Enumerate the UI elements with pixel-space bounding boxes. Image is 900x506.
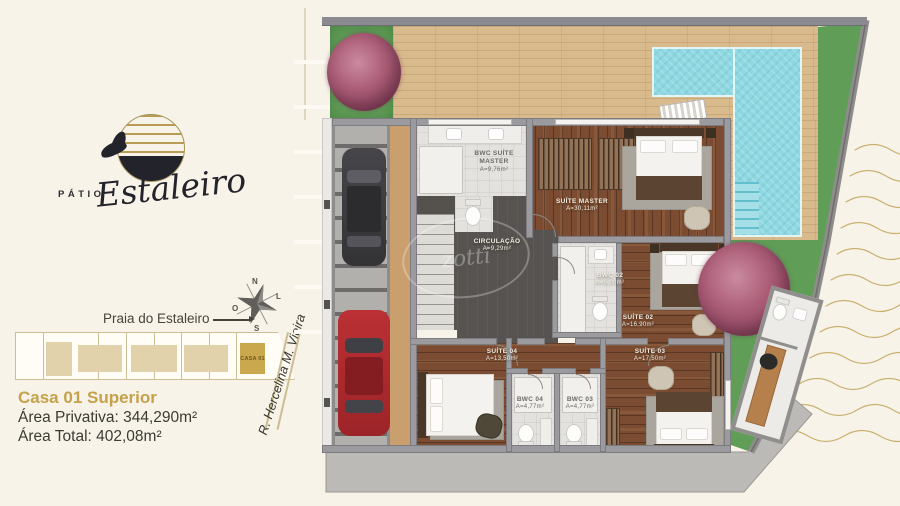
car-rear-window — [345, 400, 383, 413]
label-bwc-master: BWC SUÍTE MASTER A=9,76m² — [462, 150, 526, 175]
floor-plan-page: PÁTIO Estaleiro N L O S Praia do Estalei… — [0, 0, 900, 506]
wall — [542, 368, 576, 374]
sink — [791, 307, 808, 322]
wall — [506, 368, 528, 374]
sliding-glass-door — [555, 119, 700, 125]
label-suite-master: SUÍTE MASTER A=30,11m² — [544, 198, 620, 214]
label-suite02: SUÍTE 02 A=16,90m² — [598, 314, 678, 330]
label-bwc02: BWC 02 A=5,00m² — [582, 272, 638, 288]
label-bwc04: BWC 04 A=4,77m² — [508, 396, 552, 412]
bed-throw — [636, 176, 702, 200]
wall-post — [324, 300, 330, 309]
room-name: BWC SUÍTE MASTER — [462, 150, 526, 167]
wall — [558, 236, 724, 243]
wall-post — [324, 398, 330, 407]
wall-post — [324, 200, 330, 209]
pool-steps — [735, 182, 759, 234]
pillow — [686, 428, 708, 440]
sink — [446, 128, 462, 140]
car-roof — [347, 186, 381, 232]
pillow — [430, 406, 443, 432]
room-area: A=13,50m² — [462, 356, 542, 364]
label-suite04: SUÍTE 04 A=13,50m² — [462, 348, 542, 364]
window — [428, 119, 512, 125]
car-roof — [345, 357, 383, 395]
room-area: A=9,29m² — [458, 246, 536, 254]
bwc04-counter — [540, 418, 552, 446]
car-rear-window — [347, 236, 381, 247]
room-area: A=4,77m² — [508, 404, 552, 412]
sink — [488, 128, 504, 140]
room-area: A=16,90m² — [598, 322, 678, 330]
pillow — [672, 140, 698, 153]
nightstand — [650, 244, 659, 253]
bwc-master-counter — [428, 124, 522, 144]
label-suite03: SUÍTE 03 A=17,50m² — [608, 348, 692, 364]
stair-landing — [413, 196, 457, 214]
toilet-tank — [465, 199, 481, 206]
car-windshield — [347, 170, 381, 183]
room-name: BWC 04 — [508, 396, 552, 404]
pillow — [430, 378, 443, 404]
room-area: A=17,50m² — [608, 356, 692, 364]
wardrobe-master — [538, 138, 592, 190]
sink — [594, 249, 607, 260]
armchair — [684, 206, 710, 230]
wall — [526, 118, 533, 238]
wall — [600, 338, 606, 452]
room-area: A=30,11m² — [544, 206, 620, 214]
wall — [410, 338, 497, 345]
site-top-wall — [322, 17, 867, 26]
room-area: A=5,00m² — [582, 280, 638, 288]
bed-throw — [656, 392, 712, 412]
wall — [590, 368, 606, 374]
tree — [327, 33, 401, 111]
shower-master — [419, 146, 463, 194]
wall — [552, 243, 558, 257]
wall — [552, 280, 558, 338]
nightstand — [706, 128, 716, 138]
black-car — [342, 148, 386, 266]
label-circulacao: CIRCULAÇÃO A=9,29m² — [458, 238, 536, 254]
wall — [322, 445, 731, 453]
wardrobe-suite03 — [606, 408, 620, 450]
label-bwc03: BWC 03 A=4,77m² — [558, 396, 602, 412]
red-car — [338, 310, 390, 436]
pillow — [640, 140, 666, 153]
bwc03-counter — [586, 418, 598, 446]
side-walkway — [390, 120, 410, 452]
window — [725, 380, 731, 430]
armchair — [648, 366, 674, 390]
room-area: A=4,77m² — [558, 404, 602, 412]
pillow — [665, 254, 687, 266]
nightstand — [624, 128, 634, 138]
room-area: A=9,76m² — [462, 167, 526, 175]
wall — [668, 338, 724, 345]
wall — [517, 338, 545, 345]
wall — [600, 338, 648, 345]
car-windshield — [345, 338, 383, 353]
pillow — [660, 428, 682, 440]
room-name: BWC 03 — [558, 396, 602, 404]
